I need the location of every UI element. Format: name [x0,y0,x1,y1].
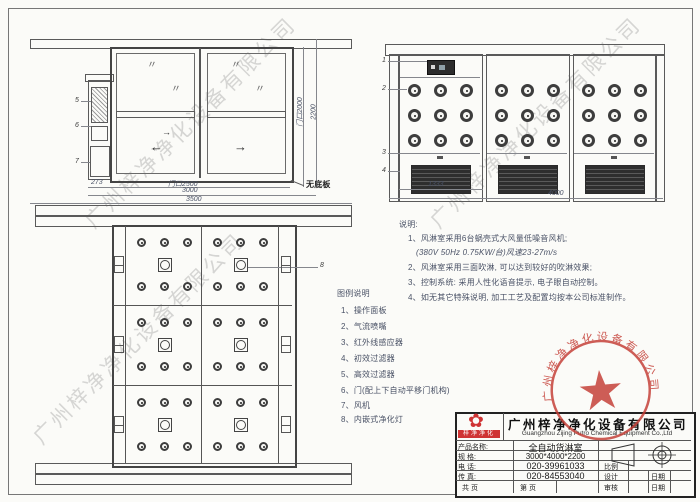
recessed-lamp [158,418,172,432]
air-nozzle [495,109,508,122]
air-nozzle [634,134,647,147]
air-nozzle [259,318,268,327]
air-nozzle [582,109,595,122]
air-nozzle [521,84,534,97]
air-nozzle [236,282,245,291]
air-nozzle [213,398,222,407]
air-nozzle [259,362,268,371]
air-nozzle [547,84,560,97]
air-nozzle [521,109,534,122]
title-block-line [648,470,649,493]
fax-value: 020-84553040 [513,471,598,481]
air-nozzle [213,442,222,451]
audit-label: 审核 [604,483,618,493]
seal-star-icon: ★ [574,359,627,423]
spec-label: 规 格: [458,452,476,462]
air-nozzle [160,282,169,291]
wall-sensor-box [114,416,124,433]
pages-total-label: 共 页 [462,483,478,493]
wall-sensor-box [281,256,291,273]
air-nozzle [434,134,447,147]
title-block-line [670,470,671,493]
drawing-sheet: 广州梓净净化设备有限公司 广州梓净净化设备有限公司 广州梓净净化设备有限公司 〃… [0,0,700,502]
product-label: 产品名称: [458,442,488,452]
air-nozzle [582,134,595,147]
air-nozzle [236,238,245,247]
company-seal-stamp: 广州梓净净化设备有限公司 ★ [531,323,672,464]
air-nozzle [160,238,169,247]
tel-value: 020-39961033 [513,461,598,471]
tel-label: 电 话: [458,462,476,472]
air-nozzle [259,398,268,407]
air-nozzle [183,398,192,407]
air-nozzle [547,109,560,122]
air-nozzle [608,134,621,147]
wall-sensor-box [281,336,291,353]
air-nozzle [259,282,268,291]
recessed-lamp [234,418,248,432]
wall-sensor-box [114,336,124,353]
air-nozzle [137,398,146,407]
air-nozzle [183,442,192,451]
air-nozzle [213,238,222,247]
recessed-lamp [234,258,248,272]
fax-label: 传 真: [458,472,476,482]
air-nozzle [608,109,621,122]
air-nozzle [408,109,421,122]
title-block-line [556,480,557,493]
pages-current-label: 第 页 [520,483,536,493]
air-nozzle [460,109,473,122]
air-nozzle [213,318,222,327]
air-nozzle [160,362,169,371]
recessed-lamp [234,338,248,352]
air-nozzle [434,84,447,97]
air-nozzle [236,442,245,451]
air-nozzle [460,84,473,97]
air-nozzle [183,238,192,247]
air-nozzle [521,134,534,147]
air-nozzle [183,318,192,327]
air-nozzle [137,362,146,371]
air-nozzle [634,84,647,97]
air-nozzle [634,109,647,122]
air-nozzle [213,282,222,291]
air-nozzle [137,442,146,451]
air-nozzle [408,84,421,97]
design-label: 设计 [604,472,618,482]
wall-sensor-box [114,256,124,273]
air-nozzle [547,134,560,147]
air-nozzle [434,109,447,122]
air-nozzle [137,318,146,327]
recessed-lamp [158,338,172,352]
air-nozzle [259,442,268,451]
air-nozzle [137,282,146,291]
air-nozzle [408,134,421,147]
company-logo-text: 梓净净化 [458,430,500,438]
air-nozzle [495,84,508,97]
air-nozzle [460,134,473,147]
date-label: 日期 [651,472,665,482]
air-nozzle [236,362,245,371]
air-nozzle [259,238,268,247]
air-nozzle [160,318,169,327]
air-nozzle [582,84,595,97]
date-label: 日期 [651,483,665,493]
air-nozzle [213,362,222,371]
recessed-lamp [158,258,172,272]
wall-sensor-box [281,416,291,433]
air-nozzle [160,442,169,451]
air-nozzle [495,134,508,147]
air-nozzle [183,282,192,291]
air-nozzle [183,362,192,371]
air-nozzle [236,318,245,327]
air-nozzle [236,398,245,407]
air-nozzle [160,398,169,407]
air-nozzle [608,84,621,97]
air-nozzle [137,238,146,247]
